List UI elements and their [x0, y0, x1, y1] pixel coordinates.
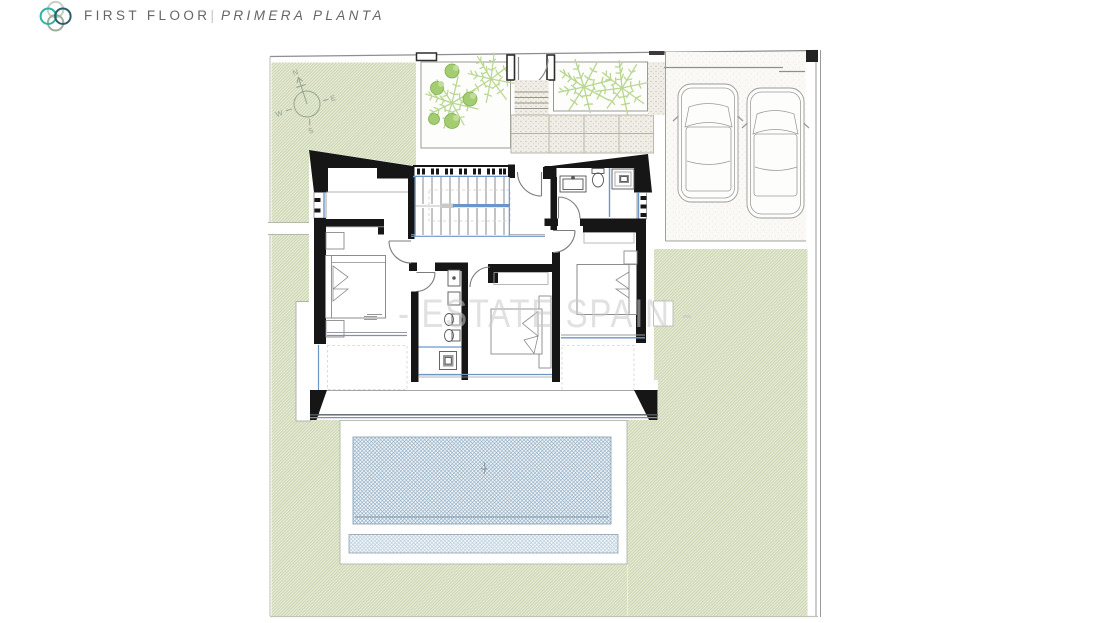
svg-text:|: | — [211, 8, 215, 23]
svg-text:- ESTATE SPAIN -: - ESTATE SPAIN - — [398, 292, 694, 336]
svg-text:FIRST FLOOR: FIRST FLOOR — [84, 8, 210, 23]
svg-text:PRIMERA PLANTA: PRIMERA PLANTA — [221, 8, 385, 23]
